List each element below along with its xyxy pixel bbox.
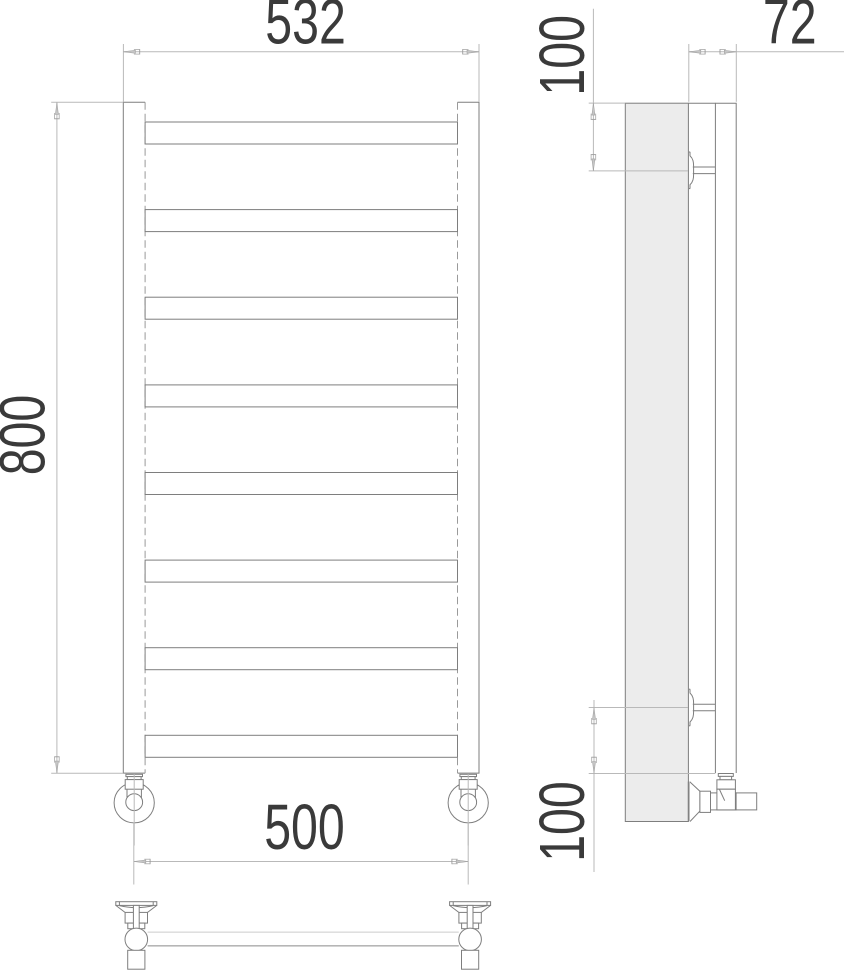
svg-text:100: 100 bbox=[528, 15, 599, 96]
svg-text:532: 532 bbox=[265, 0, 346, 58]
svg-text:72: 72 bbox=[763, 0, 817, 58]
svg-text:800: 800 bbox=[0, 395, 59, 476]
svg-text:100: 100 bbox=[528, 781, 599, 862]
svg-text:500: 500 bbox=[264, 793, 345, 864]
